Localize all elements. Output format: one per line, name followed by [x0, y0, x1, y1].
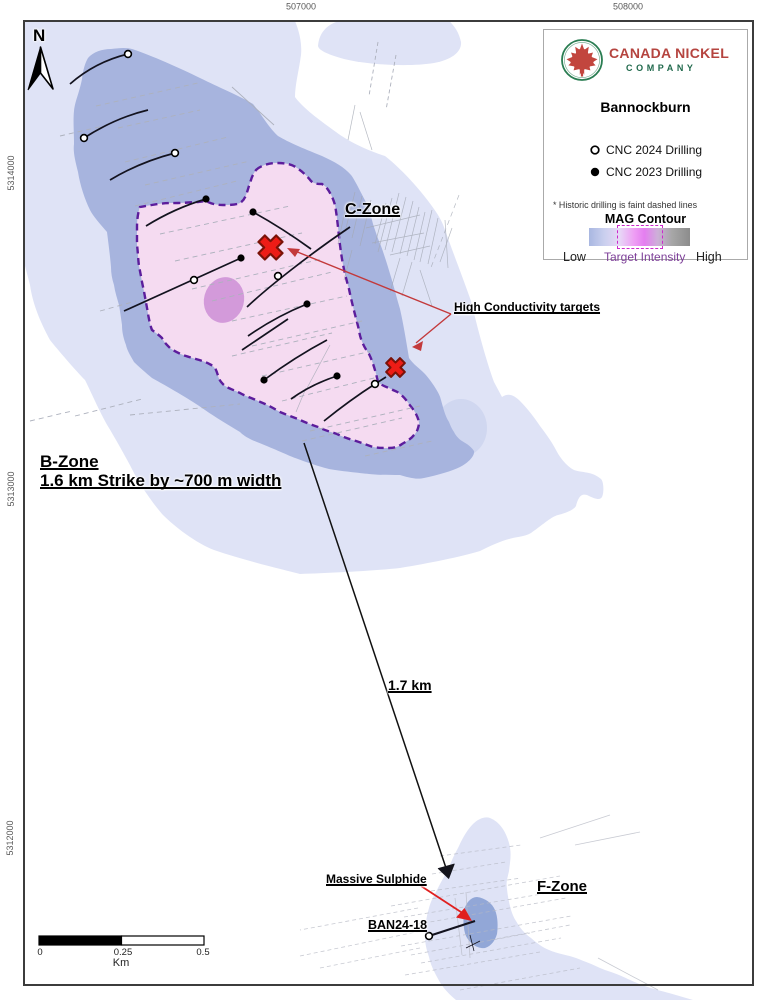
svg-text:Km: Km [113, 957, 130, 969]
svg-text:5314000: 5314000 [6, 155, 16, 190]
svg-text:0.5: 0.5 [196, 947, 209, 958]
svg-text:0: 0 [37, 947, 42, 958]
svg-text:508000: 508000 [613, 2, 643, 12]
svg-text:507000: 507000 [286, 2, 316, 12]
svg-text:5313000: 5313000 [6, 471, 16, 506]
svg-text:5312000: 5312000 [5, 820, 15, 855]
